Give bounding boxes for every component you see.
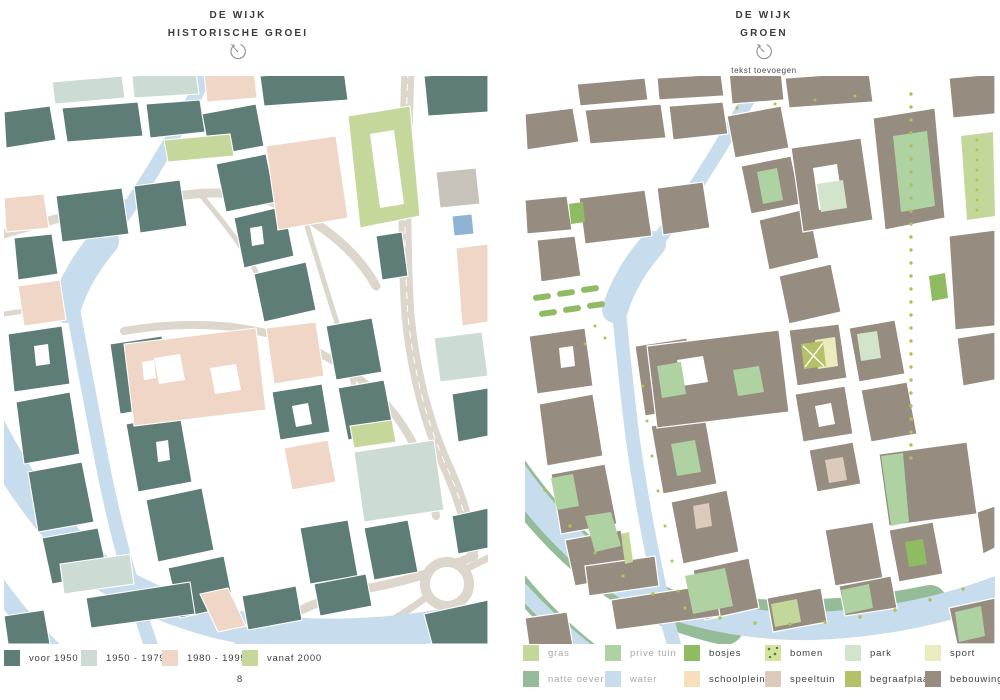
tree-dot bbox=[976, 179, 979, 182]
legend-item: park bbox=[845, 645, 925, 661]
legend-swatch bbox=[523, 645, 539, 661]
legend-swatch bbox=[684, 645, 700, 661]
right-title-line2: GROEN bbox=[614, 28, 914, 39]
legend-swatch bbox=[845, 671, 861, 687]
tree-dot bbox=[823, 620, 826, 623]
tree-dot bbox=[909, 261, 912, 264]
tree-dot bbox=[976, 159, 979, 162]
legend-label: natte oever bbox=[548, 674, 604, 685]
tree-dot bbox=[621, 574, 624, 577]
tree-dot bbox=[909, 365, 912, 368]
tree-dot bbox=[651, 455, 654, 458]
legend-item: 1950 - 1979 bbox=[81, 650, 162, 666]
legend-item: voor 1950 bbox=[4, 650, 81, 666]
left-title-line2: HISTORISCHE GROEI bbox=[88, 28, 388, 39]
tree-dot bbox=[909, 144, 912, 147]
tree-dot bbox=[893, 608, 896, 611]
legend-label: speeltuin bbox=[790, 674, 835, 685]
legend-swatch bbox=[605, 645, 621, 661]
tree-dot bbox=[909, 92, 912, 95]
historical-growth-map bbox=[4, 76, 488, 644]
legend-item: natte oever bbox=[523, 671, 605, 687]
tree-dot bbox=[961, 587, 964, 590]
tree-dot bbox=[909, 274, 912, 277]
tree-dot bbox=[671, 560, 674, 563]
tree-dot bbox=[909, 118, 912, 121]
legend-item: vanaf 2000 bbox=[242, 650, 332, 666]
legend-label: 1950 - 1979 bbox=[106, 653, 166, 664]
tree-dot bbox=[976, 149, 979, 152]
tree-dot bbox=[909, 105, 912, 108]
legend-label: prive tuin bbox=[630, 648, 677, 659]
annotation-placeholder-text: tekst toevoegen bbox=[614, 66, 914, 75]
tree-dot bbox=[909, 157, 912, 160]
tree-dot bbox=[642, 385, 645, 388]
legend-label: gras bbox=[548, 648, 570, 659]
tree-dot bbox=[909, 430, 912, 433]
page-number: 8 bbox=[0, 674, 480, 685]
legend-item: bosjes bbox=[684, 645, 765, 661]
legend-item: gras bbox=[523, 645, 605, 661]
legend-swatch bbox=[925, 645, 941, 661]
tree-dot bbox=[677, 590, 680, 593]
tree-dot bbox=[909, 300, 912, 303]
tree-dot bbox=[976, 209, 979, 212]
legend-label: 1980 - 1999 bbox=[187, 653, 247, 664]
legend-swatch bbox=[765, 671, 781, 687]
tree-dot bbox=[928, 598, 931, 601]
tree-dot bbox=[568, 524, 571, 527]
legend-swatch bbox=[845, 645, 861, 661]
legend-label: bosjes bbox=[709, 648, 741, 659]
tree-dot bbox=[976, 199, 979, 202]
tree-dot bbox=[909, 417, 912, 420]
legend-swatch bbox=[523, 671, 539, 687]
left-map-header: DE WIJK HISTORISCHE GROEI bbox=[88, 10, 388, 62]
tree-dot bbox=[584, 343, 587, 346]
tree-dot bbox=[909, 404, 912, 407]
tree-dot bbox=[909, 378, 912, 381]
tree-dot bbox=[604, 337, 607, 340]
tree-dot bbox=[909, 391, 912, 394]
tree-dot bbox=[788, 622, 791, 625]
tree-dot bbox=[718, 616, 721, 619]
tree-dot bbox=[909, 209, 912, 212]
legend-swatch bbox=[242, 650, 258, 666]
tree-dot bbox=[651, 592, 654, 595]
history-clock-icon bbox=[227, 42, 249, 62]
tree-dot bbox=[909, 183, 912, 186]
right-title-line1: DE WIJK bbox=[614, 10, 914, 21]
tree-dot bbox=[593, 551, 596, 554]
green-space-map bbox=[525, 76, 995, 644]
tree-dot bbox=[657, 490, 660, 493]
tree-dot bbox=[858, 615, 861, 618]
legend-label: water bbox=[630, 674, 657, 685]
tree-dot bbox=[909, 339, 912, 342]
tree-dot bbox=[976, 189, 979, 192]
legend-label: schoolplein bbox=[709, 674, 765, 685]
tree-dot bbox=[814, 99, 817, 102]
tree-dot bbox=[683, 606, 686, 609]
tree-dot bbox=[976, 169, 979, 172]
tree-dot bbox=[909, 352, 912, 355]
legend-swatch bbox=[4, 650, 20, 666]
tree-dot bbox=[664, 525, 667, 528]
legend-item: bebouwing bbox=[925, 671, 992, 687]
legend-item: prive tuin bbox=[605, 645, 684, 661]
tree-dot bbox=[909, 235, 912, 238]
tree-dot bbox=[909, 287, 912, 290]
tree-dot bbox=[976, 139, 979, 142]
legend-swatch bbox=[925, 671, 941, 687]
legend-item: 1980 - 1999 bbox=[162, 650, 242, 666]
legend-label: park bbox=[870, 648, 892, 659]
tree-dot bbox=[909, 170, 912, 173]
brochure-page: DE WIJK HISTORISCHE GROEI DE WIJK GROEN … bbox=[0, 0, 1000, 700]
tree-dot bbox=[543, 488, 546, 491]
tree-dot bbox=[909, 222, 912, 225]
tree-dot bbox=[909, 248, 912, 251]
legend-item: bomen bbox=[765, 645, 845, 661]
legend-item: schoolplein bbox=[684, 671, 765, 687]
legend-swatch bbox=[684, 671, 700, 687]
tree-dot bbox=[909, 326, 912, 329]
legend-label: bomen bbox=[790, 648, 823, 659]
tree-dot bbox=[909, 131, 912, 134]
legend-swatch bbox=[765, 645, 781, 661]
historical-growth-legend: voor 19501950 - 19791980 - 1999vanaf 200… bbox=[4, 650, 332, 666]
legend-item: water bbox=[605, 671, 684, 687]
left-title-line1: DE WIJK bbox=[88, 10, 388, 21]
tree-dot bbox=[909, 456, 912, 459]
tree-dot bbox=[909, 196, 912, 199]
legend-label: voor 1950 bbox=[29, 653, 78, 664]
tree-dot bbox=[854, 95, 857, 98]
tree-dot bbox=[646, 420, 649, 423]
legend-label: sport bbox=[950, 648, 975, 659]
right-map-header: DE WIJK GROEN tekst toevoegen bbox=[614, 10, 914, 75]
tree-dot bbox=[909, 443, 912, 446]
legend-item: sport bbox=[925, 645, 992, 661]
tree-dot bbox=[909, 313, 912, 316]
legend-swatch bbox=[605, 671, 621, 687]
legend-item: speeltuin bbox=[765, 671, 845, 687]
tree-dot bbox=[736, 107, 739, 110]
legend-swatch bbox=[81, 650, 97, 666]
legend-label: bebouwing bbox=[950, 674, 1000, 685]
tree-dot bbox=[753, 621, 756, 624]
legend-item: begraafplaats bbox=[845, 671, 925, 687]
tree-dot bbox=[594, 325, 597, 328]
green-legend: grasprive tuinbosjesbomenparksportnatte … bbox=[523, 645, 992, 687]
tree-dot bbox=[774, 103, 777, 106]
legend-label: vanaf 2000 bbox=[267, 653, 322, 664]
history-clock-icon bbox=[753, 42, 775, 62]
legend-swatch bbox=[162, 650, 178, 666]
